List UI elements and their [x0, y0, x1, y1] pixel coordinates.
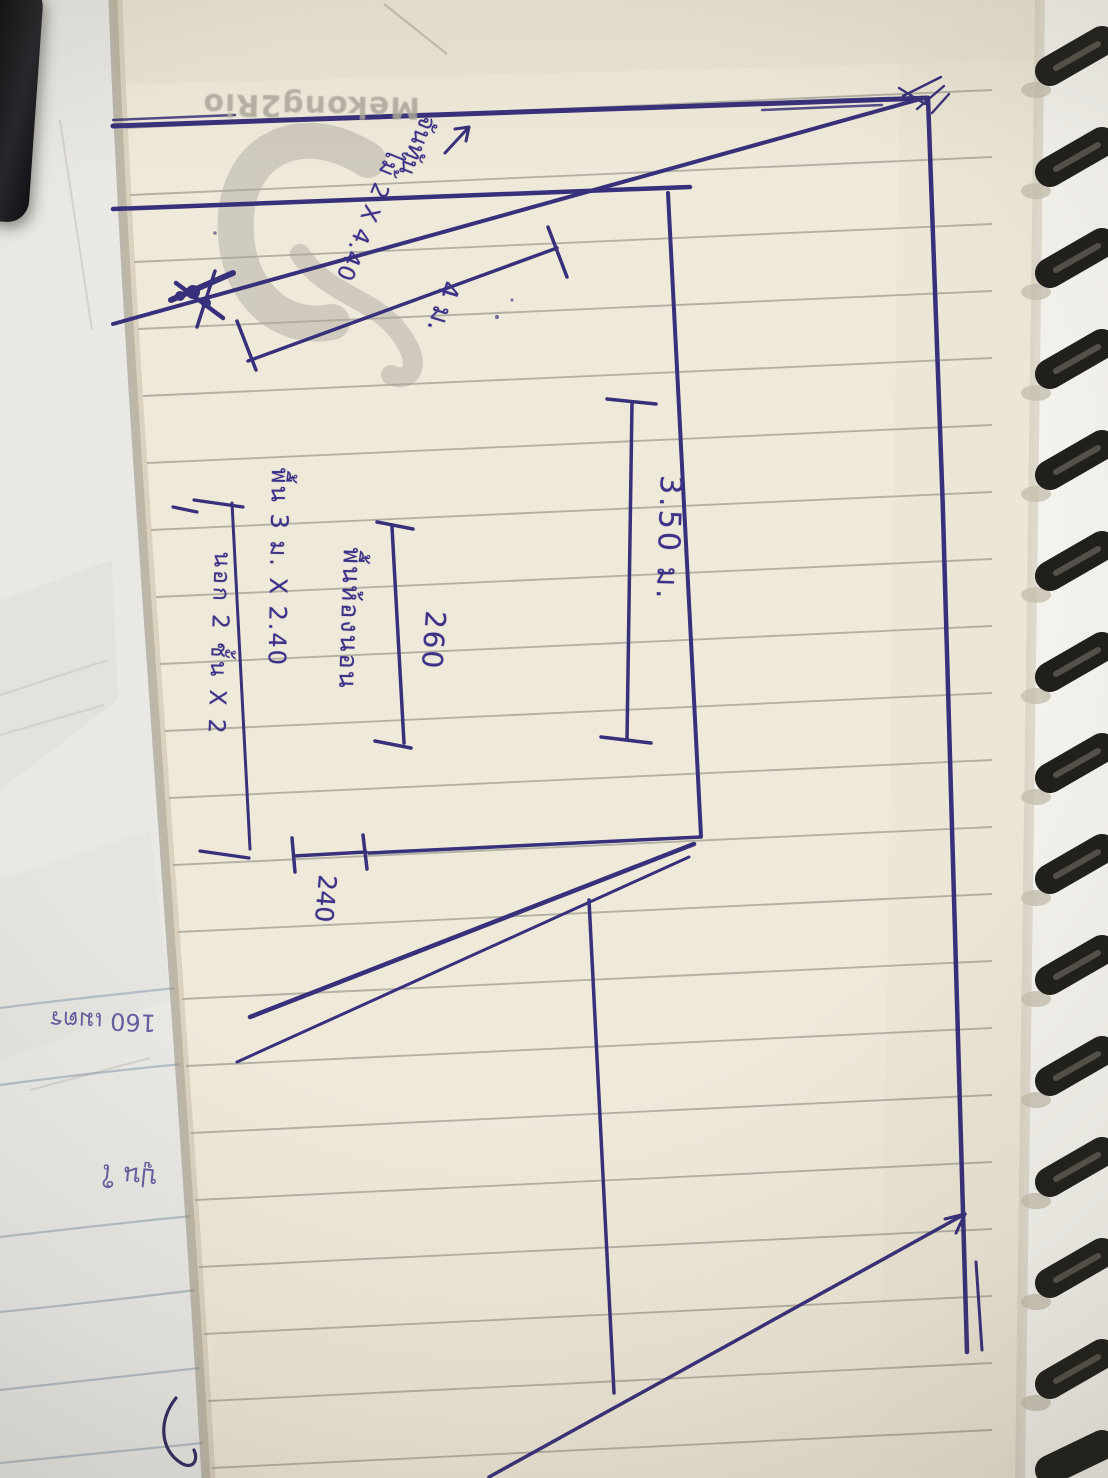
notebook-photo: Mekong2Rio 3.50 ม. 260 พื้นห้องนอน พื้น … [0, 0, 1108, 1478]
under-page-note-1: 160 เมตร [17, 999, 188, 1044]
label-floor-note-1: พื้น 3 ม. X 2.40 [258, 467, 300, 667]
label-height: 240 [309, 873, 342, 923]
label-floor-note-2: นอก 2 ชั้น X 2 [198, 551, 240, 737]
label-room: พื้นห้องนอน [327, 547, 372, 691]
label-span-length: 3.50 ม. [643, 474, 694, 602]
sketch-canvas [0, 0, 1108, 1478]
label-mid-width: 260 [415, 610, 452, 672]
watermark-brand-text: Mekong2Rio [210, 86, 421, 125]
